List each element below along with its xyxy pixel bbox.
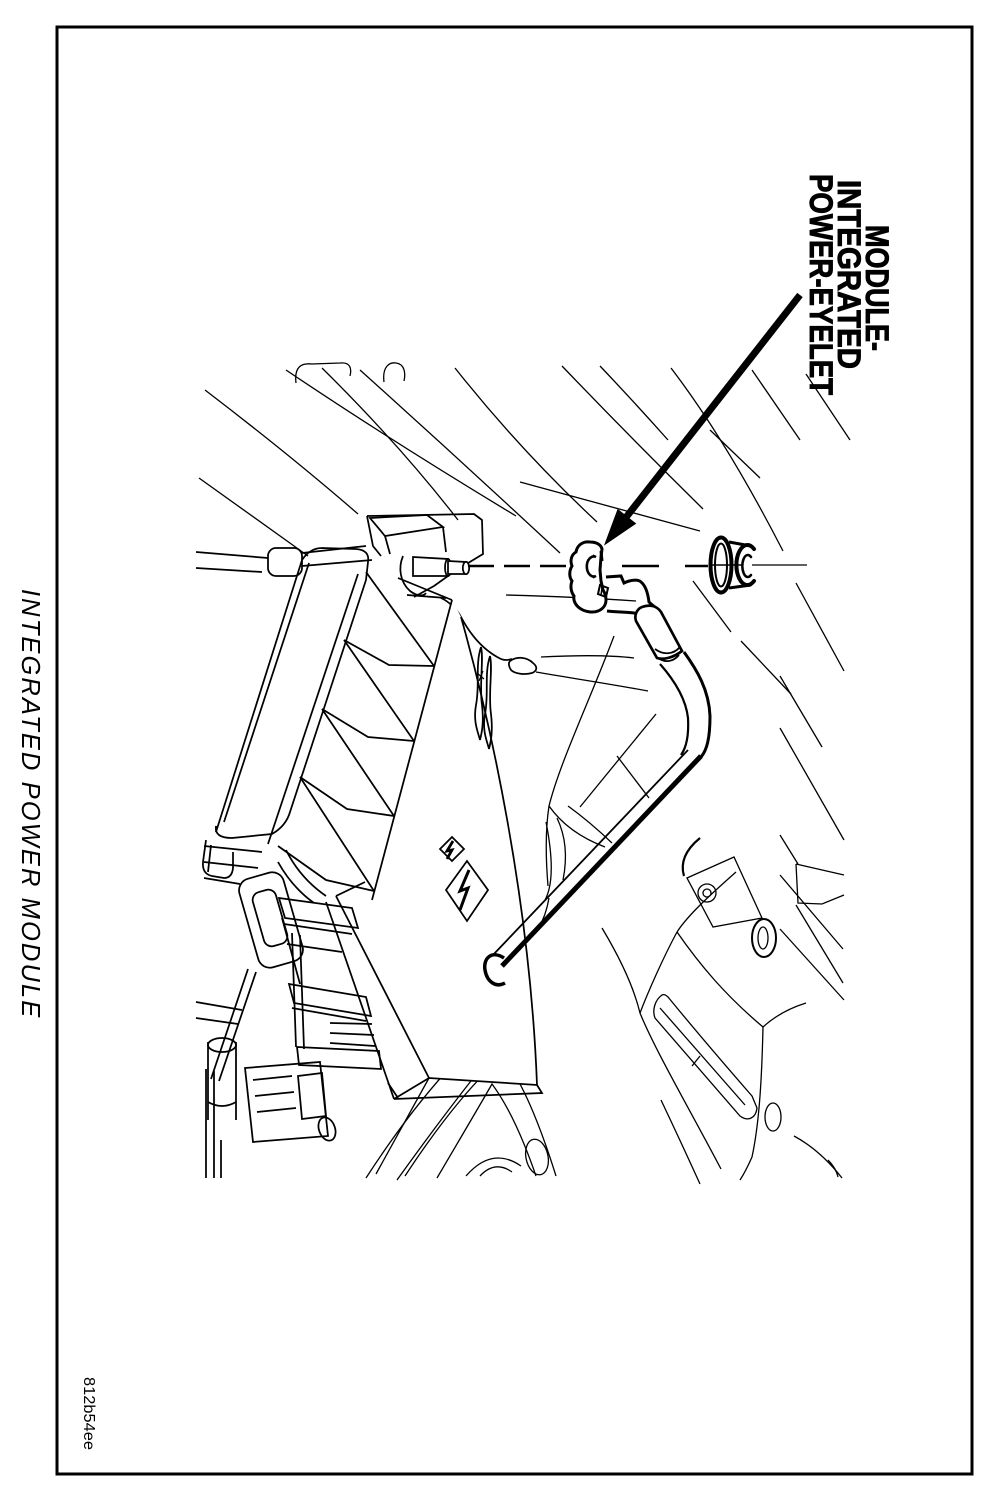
svg-text:INTEGRATED POWER MODULE: INTEGRATED POWER MODULE <box>16 589 44 1019</box>
svg-text:POWER-EYELET: POWER-EYELET <box>803 174 839 395</box>
svg-text:812b54ee: 812b54ee <box>80 1377 97 1450</box>
